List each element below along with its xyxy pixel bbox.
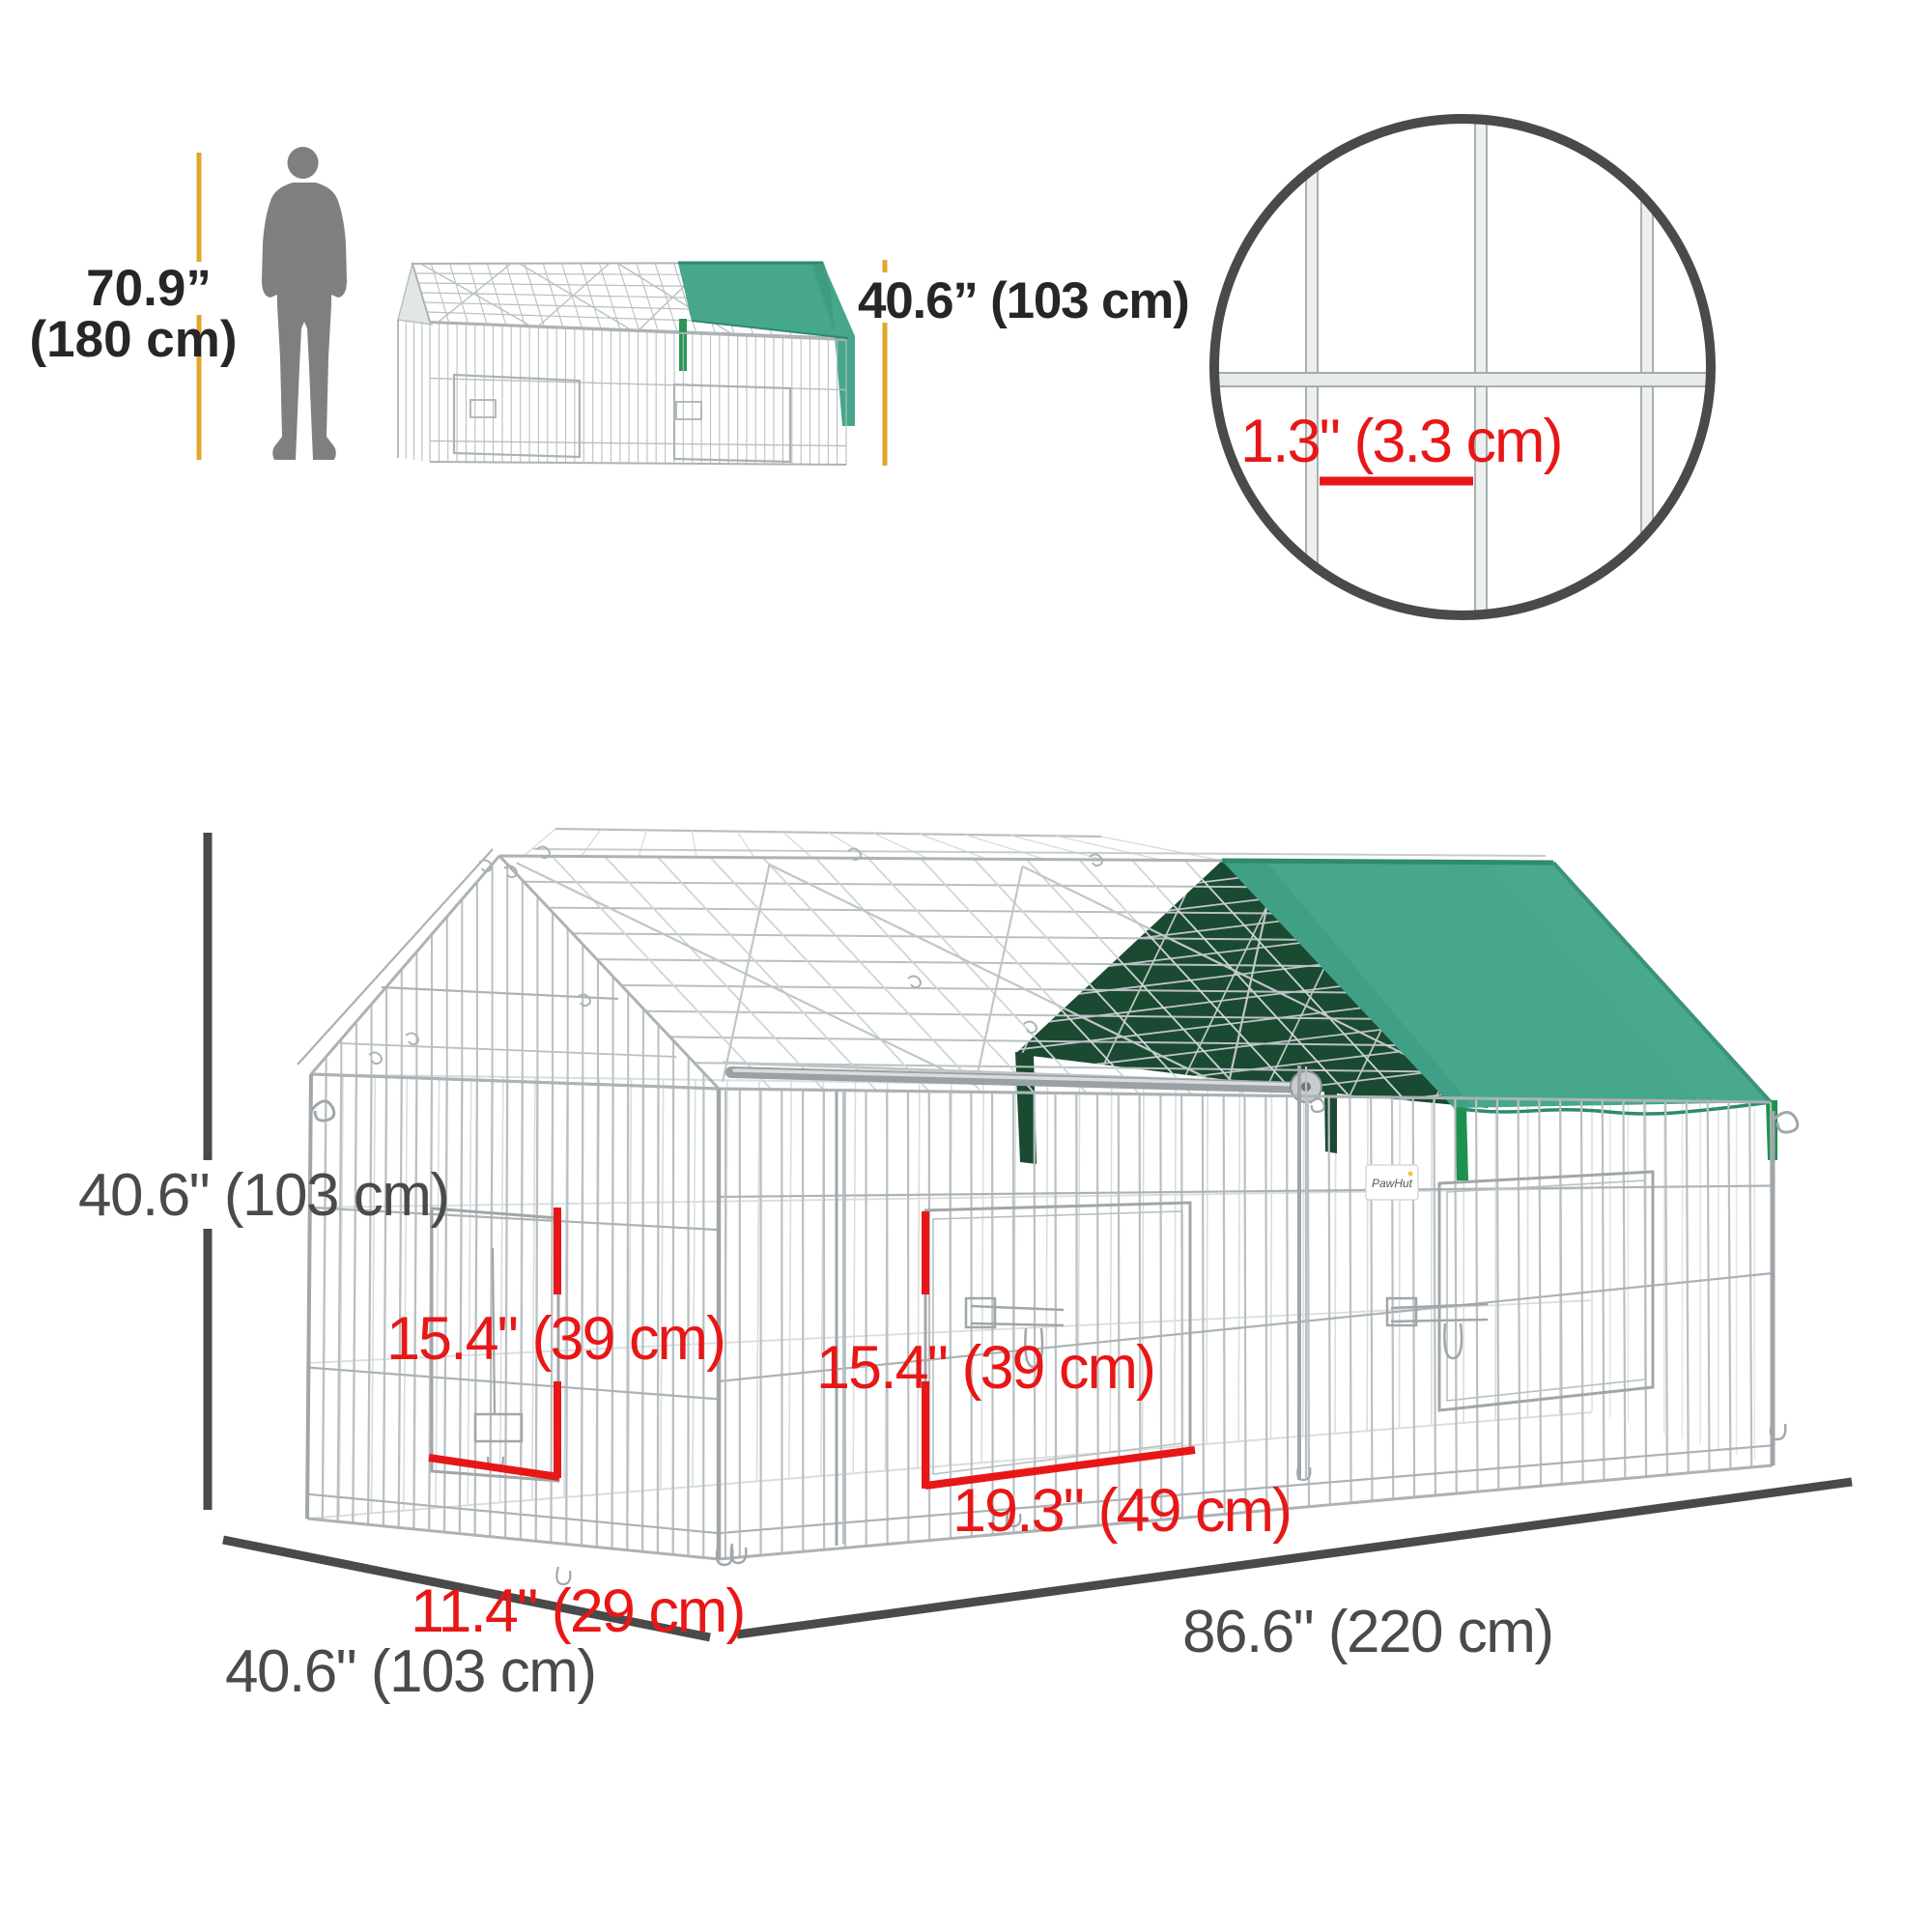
svg-text:19.3" (49 cm): 19.3" (49 cm) [952, 1477, 1291, 1545]
svg-text:15.4" (39 cm): 15.4" (39 cm) [816, 1334, 1154, 1402]
svg-text:11.4" (29 cm): 11.4" (29 cm) [411, 1577, 744, 1645]
svg-text:40.6” (103 cm): 40.6” (103 cm) [858, 272, 1189, 329]
svg-text:15.4" (39 cm): 15.4" (39 cm) [386, 1305, 724, 1373]
svg-text:70.9”: 70.9” [86, 260, 212, 317]
svg-text:86.6" (220 cm): 86.6" (220 cm) [1182, 1599, 1553, 1665]
svg-text:1.3" (3.3 cm): 1.3" (3.3 cm) [1240, 408, 1561, 475]
svg-text:PawHut: PawHut [1372, 1177, 1413, 1190]
svg-text:40.6" (103 cm): 40.6" (103 cm) [78, 1162, 449, 1229]
svg-text:40.6" (103 cm): 40.6" (103 cm) [225, 1638, 596, 1705]
svg-text:(180 cm): (180 cm) [29, 311, 237, 368]
